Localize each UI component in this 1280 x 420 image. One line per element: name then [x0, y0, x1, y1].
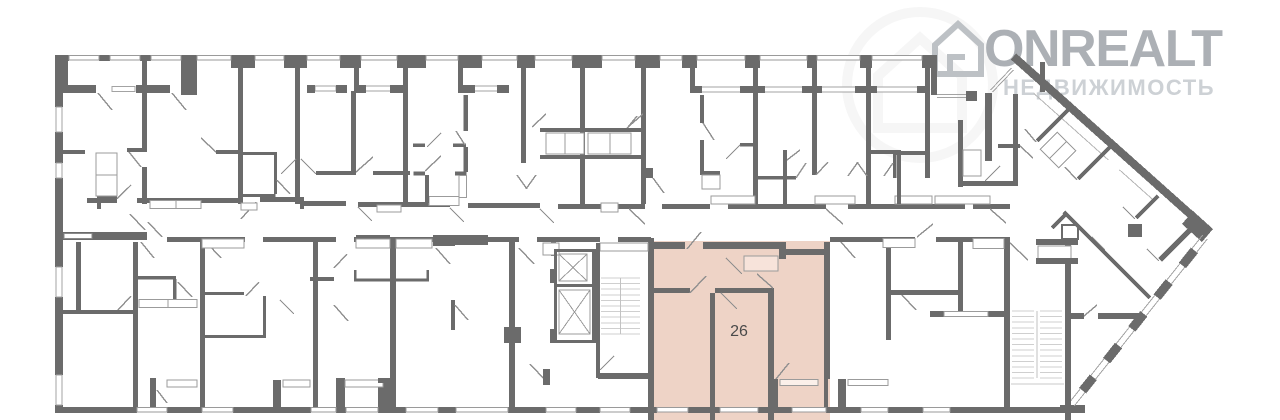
svg-text:ONREALT: ONREALT	[984, 20, 1224, 78]
svg-text:26: 26	[730, 323, 748, 340]
